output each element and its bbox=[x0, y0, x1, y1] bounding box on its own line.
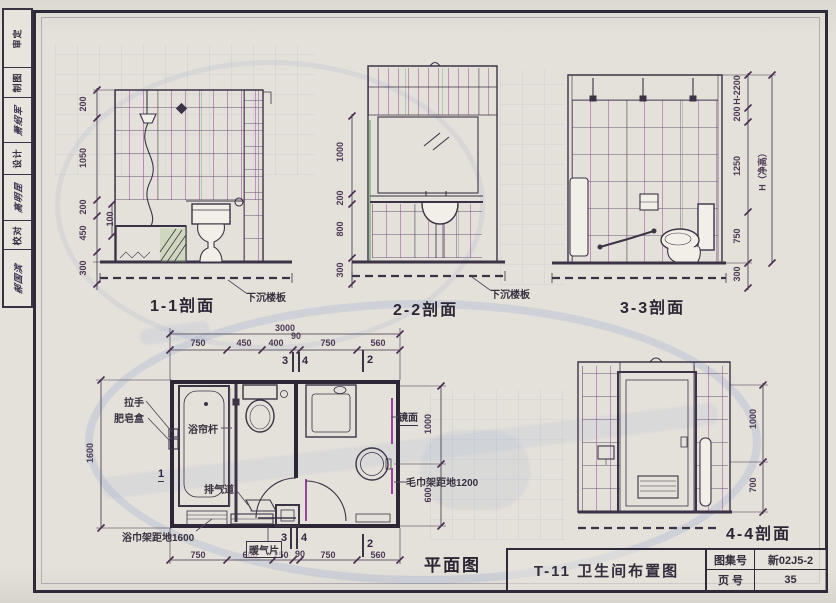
callout-sunken-slab: 下沉楼板 bbox=[490, 286, 530, 301]
plan-dim-right: 1000 bbox=[423, 407, 433, 441]
section-mark-3: 3 bbox=[282, 355, 288, 367]
section-mark-4: 4 bbox=[301, 532, 307, 544]
dim-1-1: 300 bbox=[78, 251, 88, 285]
plan-dim-bottom: 560 bbox=[361, 550, 395, 560]
label-exhaust-duct: 排气道 bbox=[204, 481, 234, 496]
dim-2-2: 200 bbox=[335, 181, 345, 215]
atlas-number-label: 图集号 bbox=[707, 550, 755, 570]
section-1-1-linework bbox=[93, 87, 292, 294]
label-bath-towel-rack: 浴巾架距地1600 bbox=[122, 529, 194, 544]
plan-dim-left: 1600 bbox=[85, 436, 95, 470]
plan-dim-top: 750 bbox=[181, 338, 215, 348]
dim-4-4: 700 bbox=[748, 468, 758, 502]
caption-section-3-3: 3-3剖面 bbox=[620, 294, 685, 318]
scanned-atlas-page: 审定 制图 萧绍军 设计 高明昆 校对 郝国滨 bbox=[0, 0, 836, 603]
dim-1-1: 1050 bbox=[78, 141, 88, 175]
title-block: 图集号 新02J5-2 页 号 35 bbox=[705, 548, 828, 592]
label-radiator: 暖气片 bbox=[246, 541, 282, 558]
plan-dim-bottom: 750 bbox=[311, 550, 345, 560]
dim-2-2: 800 bbox=[335, 212, 345, 246]
section-mark-1: 1 bbox=[158, 468, 164, 482]
caption-plan: 平面图 bbox=[424, 551, 481, 576]
page-number-label: 页 号 bbox=[707, 570, 755, 590]
callout-sunken-slab: 下沉楼板 bbox=[246, 289, 286, 304]
label-soap-box: 肥皂盒 bbox=[114, 410, 144, 425]
dim-3-3: 200 bbox=[732, 97, 742, 131]
dim-3-3: 1250 bbox=[732, 149, 742, 183]
section-2-2-linework bbox=[349, 63, 506, 291]
section-mark-2: 2 bbox=[367, 354, 373, 366]
plan-dim-top: 90 bbox=[279, 331, 313, 341]
plan-dim-bottom: 750 bbox=[181, 550, 215, 560]
dim-1-1: 450 bbox=[78, 216, 88, 250]
plan-dim-top: 560 bbox=[361, 338, 395, 348]
page-number-value: 35 bbox=[755, 570, 826, 590]
plan-dim-top: 450 bbox=[227, 338, 261, 348]
label-curtain-rod: 浴帘杆 bbox=[188, 421, 218, 436]
dim-3-3: 750 bbox=[732, 219, 742, 253]
dim-1-1: 200 bbox=[78, 87, 88, 121]
section-mark-4: 4 bbox=[302, 355, 308, 367]
caption-section-1-1: 1-1剖面 bbox=[150, 292, 215, 316]
atlas-number-value: 新02J5-2 bbox=[755, 550, 826, 570]
label-handle: 拉手 bbox=[124, 394, 144, 409]
section-mark-2: 2 bbox=[367, 538, 373, 550]
caption-section-4-4: 4-4剖面 bbox=[726, 520, 791, 544]
dim-3-3-overall: H（净高） bbox=[756, 138, 769, 202]
label-towel-rail: 毛巾架距地1200 bbox=[406, 474, 478, 489]
dim-1-1: 100 bbox=[105, 202, 115, 236]
dim-3-3: 300 bbox=[732, 257, 742, 291]
label-mirror: 镜面 bbox=[398, 409, 418, 426]
dim-2-2: 300 bbox=[335, 253, 345, 287]
caption-section-2-2: 2-2剖面 bbox=[393, 296, 458, 320]
dim-4-4: 1000 bbox=[748, 402, 758, 436]
section-4-4-linework bbox=[578, 358, 768, 528]
drawing-title: T-11 卫生间布置图 bbox=[506, 548, 707, 592]
section-3-3-linework bbox=[552, 72, 776, 292]
dim-2-2: 1000 bbox=[335, 135, 345, 169]
plan-dim-top: 750 bbox=[311, 338, 345, 348]
